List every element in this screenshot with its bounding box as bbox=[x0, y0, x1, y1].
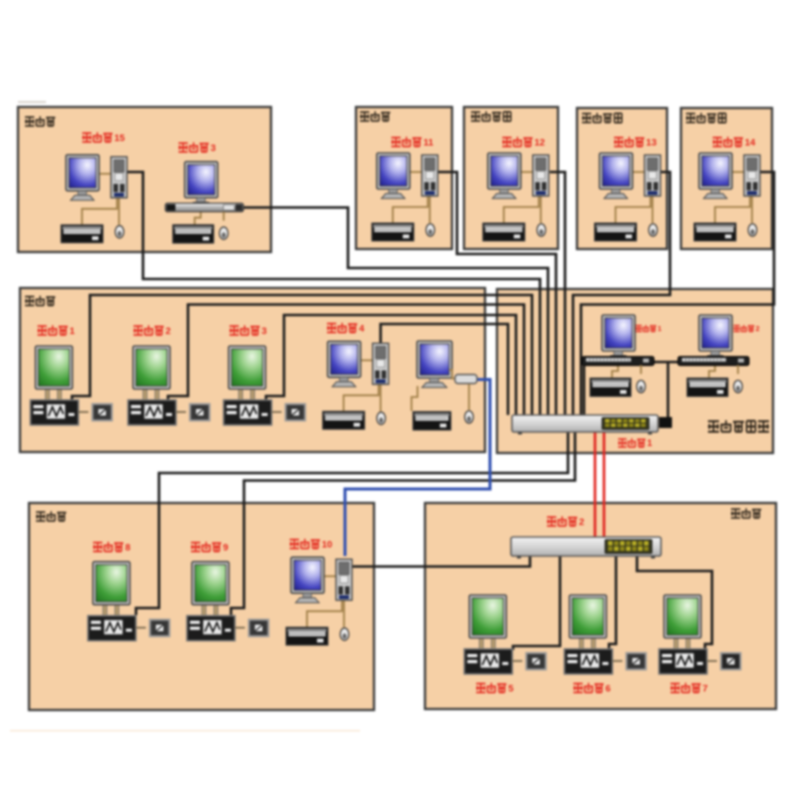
svg-text:11: 11 bbox=[423, 137, 434, 148]
svg-text:15: 15 bbox=[114, 133, 125, 144]
svg-text:13: 13 bbox=[646, 137, 657, 148]
svg-text:12: 12 bbox=[534, 137, 545, 148]
svg-text:2: 2 bbox=[579, 517, 584, 528]
svg-text:1: 1 bbox=[647, 438, 652, 448]
svg-text:9: 9 bbox=[223, 542, 228, 553]
svg-text:2: 2 bbox=[756, 326, 760, 333]
svg-text:2: 2 bbox=[165, 326, 170, 337]
svg-text:8: 8 bbox=[125, 542, 130, 553]
svg-text:6: 6 bbox=[605, 683, 610, 694]
svg-text:4: 4 bbox=[359, 323, 365, 334]
svg-text:1: 1 bbox=[658, 326, 662, 333]
svg-text:5: 5 bbox=[508, 683, 514, 694]
svg-text:7: 7 bbox=[702, 683, 707, 694]
svg-text:10: 10 bbox=[322, 539, 333, 550]
svg-text:14: 14 bbox=[745, 137, 756, 148]
svg-text:3: 3 bbox=[261, 326, 266, 337]
svg-text:3: 3 bbox=[210, 143, 215, 154]
svg-text:1: 1 bbox=[69, 326, 75, 337]
